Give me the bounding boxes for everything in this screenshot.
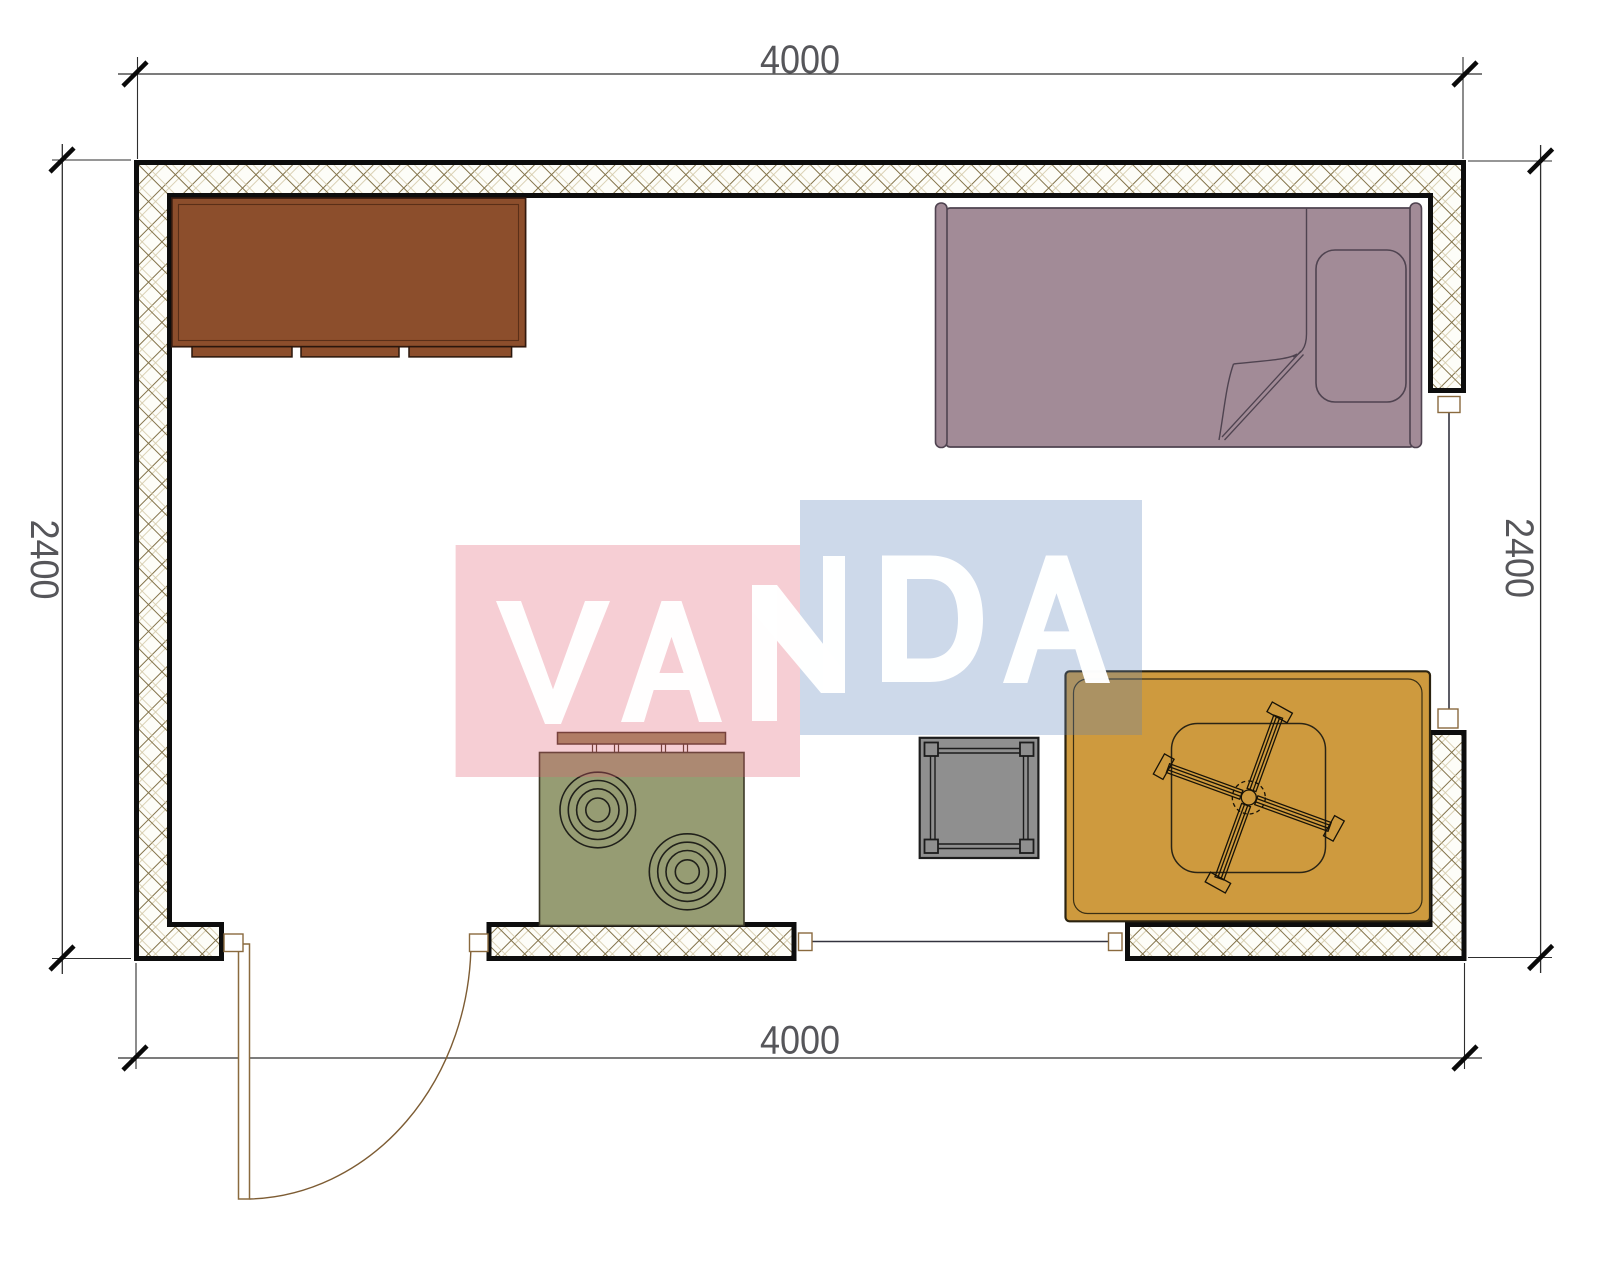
svg-text:4000: 4000 [760,1019,840,1063]
svg-text:2400: 2400 [1497,518,1541,598]
svg-text:2400: 2400 [22,519,66,599]
svg-text:4000: 4000 [760,38,840,82]
